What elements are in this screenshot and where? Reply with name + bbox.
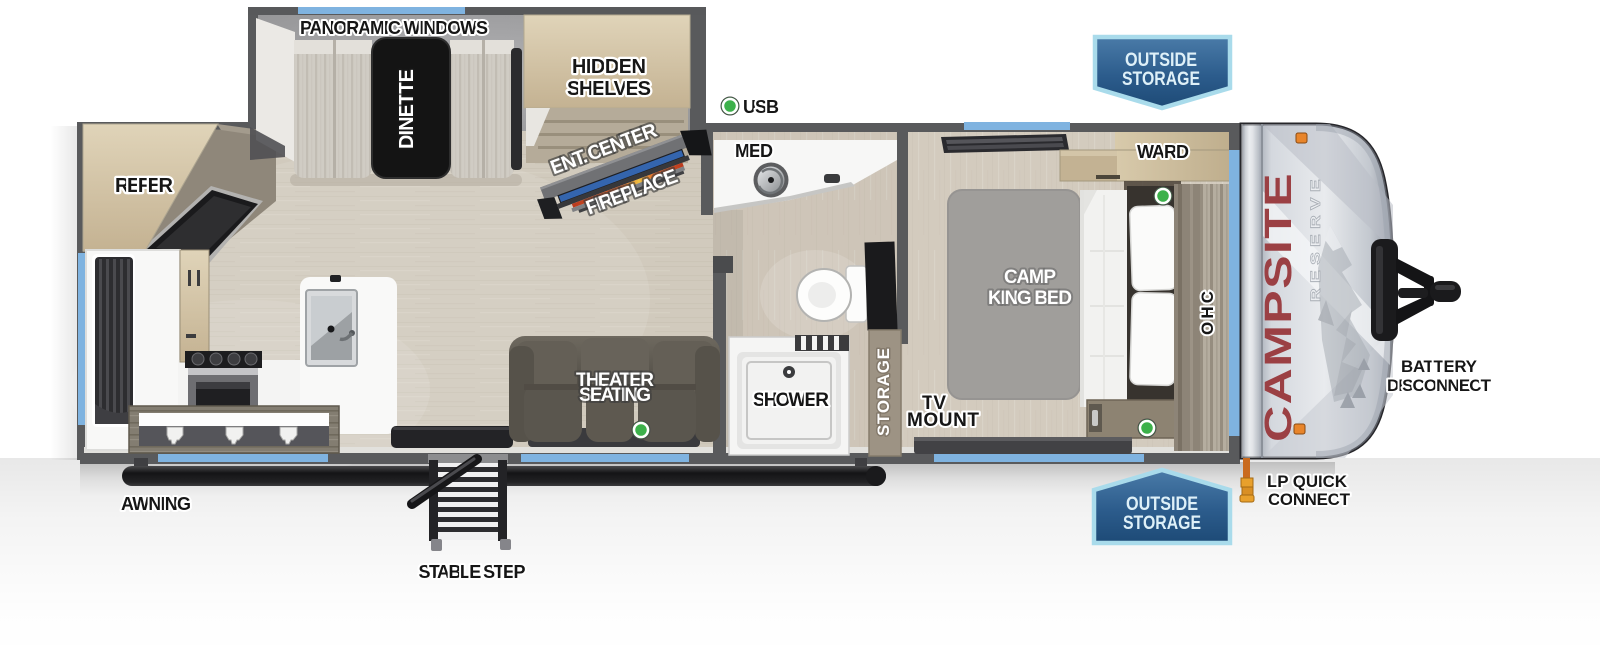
svg-text:OHC: OHC — [1198, 291, 1217, 335]
svg-text:CONNECT: CONNECT — [1268, 490, 1351, 509]
svg-text:CAMP: CAMP — [1004, 267, 1056, 288]
svg-text:WARD: WARD — [1137, 142, 1189, 162]
svg-text:AWNING: AWNING — [121, 494, 191, 514]
svg-text:OUTSIDE: OUTSIDE — [1125, 50, 1197, 71]
svg-text:LP QUICK: LP QUICK — [1267, 472, 1348, 491]
svg-text:MED: MED — [735, 141, 773, 161]
svg-text:HIDDEN: HIDDEN — [572, 56, 646, 78]
svg-text:OUTSIDE: OUTSIDE — [1126, 494, 1198, 515]
svg-text:CAMPSITE: CAMPSITE — [1258, 172, 1300, 442]
svg-text:SHELVES: SHELVES — [567, 78, 651, 100]
svg-text:REFER: REFER — [115, 175, 174, 197]
svg-text:DISCONNECT: DISCONNECT — [1387, 376, 1492, 395]
svg-text:STORAGE: STORAGE — [1122, 69, 1200, 90]
svg-text:STABLE STEP: STABLE STEP — [419, 562, 526, 582]
svg-text:KING BED: KING BED — [988, 288, 1072, 309]
svg-text:SEATING: SEATING — [579, 385, 651, 406]
svg-text:PANORAMIC WINDOWS: PANORAMIC WINDOWS — [300, 18, 488, 38]
svg-text:DINETTE: DINETTE — [396, 69, 418, 149]
svg-text:SHOWER: SHOWER — [753, 390, 829, 411]
svg-text:BATTERY: BATTERY — [1401, 357, 1478, 376]
svg-text:STORAGE: STORAGE — [874, 348, 893, 436]
svg-text:USB: USB — [743, 97, 779, 117]
svg-text:STORAGE: STORAGE — [1123, 513, 1201, 534]
svg-text:MOUNT: MOUNT — [907, 410, 979, 431]
svg-text:RESERVE: RESERVE — [1307, 174, 1323, 302]
